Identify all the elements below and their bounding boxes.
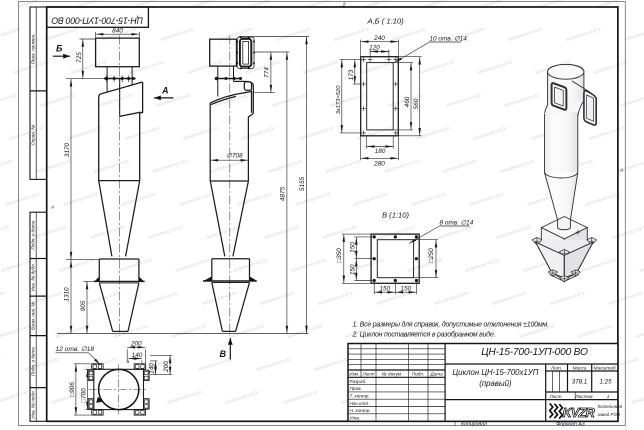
- svg-text:140: 140: [149, 363, 156, 374]
- svg-text:Листов: Листов: [574, 394, 593, 399]
- svg-text:A: A: [619, 168, 623, 174]
- svg-text:Подп.: Подп.: [412, 372, 424, 377]
- svg-text:Н. контр.: Н. контр.: [350, 408, 371, 413]
- svg-text:А: А: [161, 86, 169, 96]
- svg-text:840: 840: [112, 28, 123, 35]
- svg-text:1310: 1310: [64, 287, 71, 302]
- svg-text:Котельный: Котельный: [598, 403, 623, 409]
- svg-text:4875: 4875: [280, 186, 287, 201]
- svg-text:В (1:10): В (1:10): [382, 211, 409, 220]
- svg-text:180: 180: [375, 148, 386, 155]
- svg-text:ЦН-15-700-1УП-000 ВО: ЦН-15-700-1УП-000 ВО: [51, 16, 143, 26]
- svg-text:□350: □350: [336, 248, 343, 263]
- svg-text:150: 150: [379, 286, 390, 293]
- svg-text:Лист: Лист: [361, 372, 374, 377]
- svg-text:460: 460: [404, 96, 411, 107]
- svg-text:KVZR: KVZR: [563, 406, 596, 420]
- svg-text:Взам. инв. №: Взам. инв. №: [30, 302, 35, 330]
- svg-text:□906: □906: [69, 382, 76, 397]
- svg-text:∅708: ∅708: [226, 153, 243, 160]
- svg-text:Подп. и дата: Подп. и дата: [30, 220, 35, 249]
- svg-text:1: 1: [454, 422, 457, 428]
- svg-text:□700: □700: [81, 388, 88, 403]
- svg-text:Пров.: Пров.: [350, 386, 362, 391]
- svg-text:150: 150: [349, 242, 356, 253]
- svg-text:Лит.: Лит.: [550, 365, 562, 370]
- svg-text:(правый): (правый): [479, 379, 512, 388]
- svg-text:Разраб.: Разраб.: [350, 379, 367, 384]
- svg-text:Инв. № подл.: Инв. № подл.: [30, 390, 35, 419]
- svg-text:Масса: Масса: [573, 365, 587, 370]
- svg-text:2: 2: [341, 2, 345, 8]
- svg-text:200: 200: [163, 361, 170, 373]
- svg-text:1:25: 1:25: [599, 379, 612, 386]
- svg-text:Инв. № дубл.: Инв. № дубл.: [30, 263, 35, 291]
- svg-text:5155: 5155: [299, 176, 306, 191]
- svg-text:Дата: Дата: [429, 372, 443, 377]
- svg-text:120: 120: [369, 45, 380, 52]
- svg-text:Масштаб: Масштаб: [594, 365, 616, 370]
- svg-text:Т. контр.: Т. контр.: [350, 394, 370, 399]
- svg-text:10 отв. ∅14: 10 отв. ∅14: [430, 36, 468, 43]
- svg-text:□250: □250: [428, 248, 435, 263]
- svg-text:Перв. примен.: Перв. примен.: [30, 34, 35, 65]
- svg-text:завод РЭП: завод РЭП: [597, 412, 621, 417]
- svg-text:378,1: 378,1: [572, 379, 587, 386]
- svg-text:Подп. и дата: Подп. и дата: [30, 347, 35, 376]
- svg-text:А,Б ( 1:10): А,Б ( 1:10): [367, 17, 405, 26]
- svg-text:12 отв. ∅18: 12 отв. ∅18: [56, 346, 95, 353]
- svg-text:280: 280: [373, 160, 385, 167]
- svg-text:240: 240: [373, 35, 385, 42]
- svg-text:ЦН-15-700-1УП-000 ВО: ЦН-15-700-1УП-000 ВО: [481, 347, 588, 358]
- svg-text:Циклон ЦН-15-700х1УП: Циклон ЦН-15-700х1УП: [452, 368, 538, 377]
- svg-text:200: 200: [130, 341, 142, 348]
- svg-text:В: В: [220, 349, 227, 359]
- svg-text:Формат А3: Формат А3: [556, 422, 584, 428]
- svg-text:725: 725: [76, 52, 83, 63]
- svg-text:2. Циклон поставляется в разоб: 2. Циклон поставляется в разобранном вид…: [352, 330, 496, 338]
- svg-text:140: 140: [132, 352, 143, 359]
- svg-text:№ докум.: № докум.: [382, 372, 403, 377]
- svg-text:Нач.отд.: Нач.отд.: [350, 401, 370, 406]
- svg-text:173: 173: [348, 69, 355, 80]
- svg-text:Изм.: Изм.: [349, 372, 359, 377]
- svg-text:Лист: Лист: [548, 394, 561, 399]
- svg-text:3х173=520: 3х173=520: [336, 85, 342, 115]
- svg-text:560: 560: [413, 98, 420, 109]
- svg-text:1: 1: [607, 394, 610, 399]
- svg-text:Утв.: Утв.: [350, 415, 361, 420]
- svg-text:A: A: [50, 205, 54, 211]
- svg-text:905: 905: [80, 300, 87, 311]
- svg-text:150: 150: [349, 264, 356, 275]
- svg-text:150: 150: [401, 286, 412, 293]
- svg-text:Справ. №: Справ. №: [30, 125, 35, 146]
- svg-text:3170: 3170: [64, 142, 71, 157]
- svg-text:1. Все размеры для справок, до: 1. Все размеры для справок, допустимые о…: [353, 321, 549, 329]
- svg-text:8 отв. ∅14: 8 отв. ∅14: [440, 220, 474, 227]
- svg-text:Б: Б: [56, 44, 63, 54]
- svg-text:Копировал: Копировал: [461, 422, 487, 428]
- svg-text:774: 774: [264, 67, 271, 78]
